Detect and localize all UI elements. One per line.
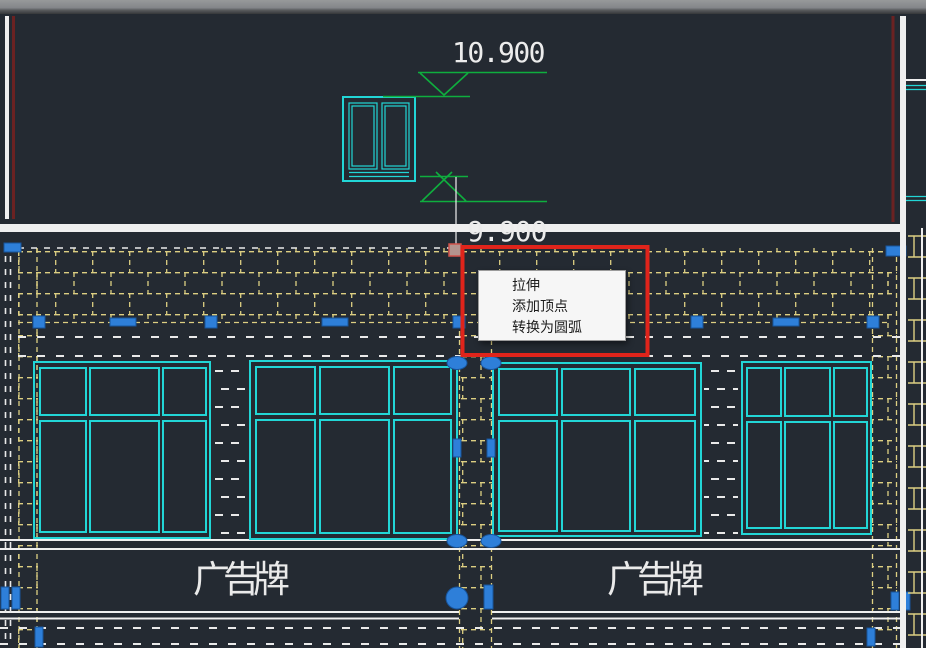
grip-bar[interactable]	[453, 439, 461, 457]
grip-base-point[interactable]	[446, 587, 468, 609]
cad-canvas[interactable]: 10.900 9.900 广告牌 广告牌	[0, 0, 926, 648]
grip-bar[interactable]	[1, 587, 9, 609]
dash-hatch-pier-b[interactable]	[213, 362, 247, 540]
menu-item-stretch[interactable]: 拉伸	[479, 275, 625, 295]
grip-bar[interactable]	[484, 585, 493, 609]
grip-bar[interactable]	[12, 587, 20, 609]
billboard-label-right[interactable]: 广告牌	[607, 558, 707, 601]
cad-viewport[interactable]: 10.900 9.900 广告牌 广告牌	[0, 0, 926, 648]
dash-hatch-pier-d[interactable]	[704, 362, 738, 540]
grip-midpoint[interactable]	[773, 318, 799, 326]
brick-hatch-band[interactable]	[18, 248, 890, 323]
brick-hatch-right-pier[interactable]	[872, 248, 897, 648]
grip-bar[interactable]	[4, 243, 21, 252]
titlebar-strip	[0, 0, 926, 14]
menu-item-add-vertex[interactable]: 添加顶点	[479, 296, 625, 316]
grip-bar[interactable]	[867, 628, 875, 646]
grip-endpoint[interactable]	[447, 357, 467, 370]
grip-hover-active[interactable]	[449, 244, 461, 256]
grip-endpoint[interactable]	[481, 357, 501, 370]
dimension-label-upper[interactable]: 10.900	[452, 36, 545, 69]
grip-vertex[interactable]	[867, 316, 879, 328]
grip-bar[interactable]	[487, 439, 495, 457]
grip-midpoint[interactable]	[322, 318, 348, 326]
grip-context-menu[interactable]: 拉伸 添加顶点 转换为圆弧	[478, 270, 626, 341]
grip-endpoint[interactable]	[481, 535, 501, 548]
dimension-label-lower[interactable]: 9.900	[467, 215, 547, 248]
grip-bar[interactable]	[891, 592, 899, 610]
menu-item-convert-to-arc[interactable]: 转换为圆弧	[479, 317, 625, 337]
grip-vertex[interactable]	[205, 316, 217, 328]
billboard-label-left[interactable]: 广告牌	[193, 558, 293, 601]
grip-vertex[interactable]	[33, 316, 45, 328]
grip-vertex[interactable]	[691, 316, 703, 328]
grip-midpoint[interactable]	[110, 318, 136, 326]
grip-endpoint[interactable]	[447, 535, 467, 548]
floor-line-9900[interactable]	[0, 224, 906, 232]
grip-bar[interactable]	[35, 627, 43, 647]
